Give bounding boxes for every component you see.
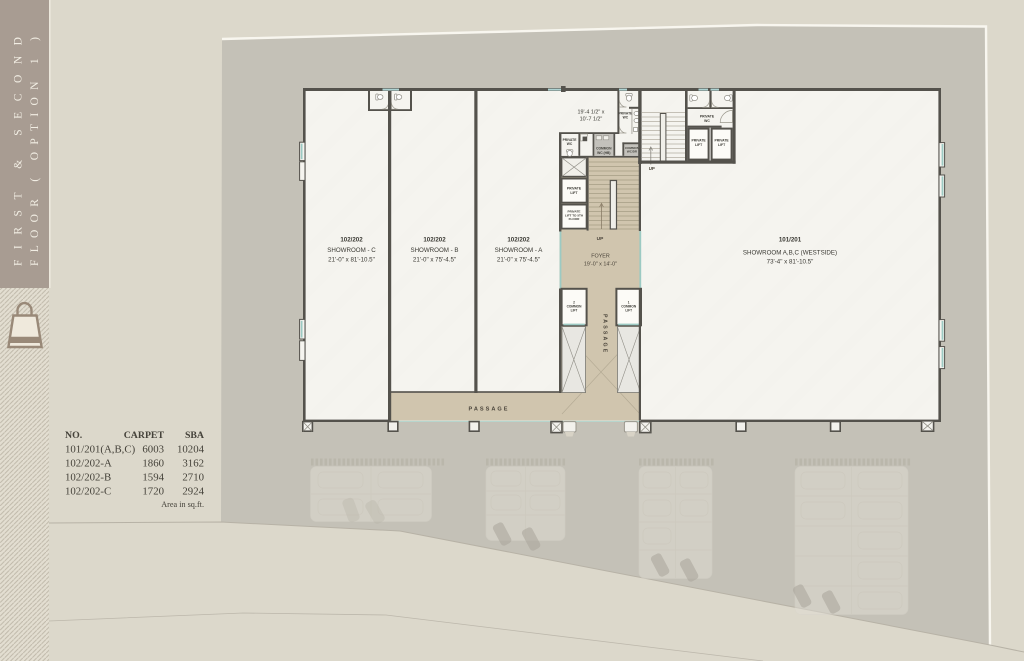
svg-text:102/202: 102/202 <box>423 237 446 244</box>
svg-text:21'-0" x 75'-4.5": 21'-0" x 75'-4.5" <box>413 256 456 263</box>
svg-text:SHOWROOM - A: SHOWROOM - A <box>495 247 544 254</box>
svg-text:10204: 10204 <box>177 444 205 456</box>
svg-text:LIFT: LIFT <box>625 309 632 313</box>
svg-text:3162: 3162 <box>182 458 204 470</box>
svg-text:73'-4" x 81'-10.5": 73'-4" x 81'-10.5" <box>767 259 814 266</box>
svg-text:101/201(A,B,C): 101/201(A,B,C) <box>65 444 136 456</box>
svg-text:PASSAGE: PASSAGE <box>469 406 510 412</box>
svg-text:UP: UP <box>649 166 655 171</box>
svg-text:102/202-B: 102/202-B <box>65 472 111 484</box>
svg-text:19'-0" x 14'-0": 19'-0" x 14'-0" <box>584 262 617 268</box>
svg-text:102/202: 102/202 <box>507 237 530 244</box>
svg-text:NO.: NO. <box>65 430 83 441</box>
svg-text:101/201: 101/201 <box>779 237 802 244</box>
svg-text:21'-0" x 75'-4.5": 21'-0" x 75'-4.5" <box>497 256 540 263</box>
svg-text:WC: WC <box>623 116 629 120</box>
svg-text:WC (HB): WC (HB) <box>597 151 610 155</box>
svg-text:1860: 1860 <box>142 458 164 470</box>
svg-text:WC/DR: WC/DR <box>627 150 638 154</box>
svg-text:1720: 1720 <box>142 486 164 498</box>
svg-text:10'-7 1/2": 10'-7 1/2" <box>580 117 603 123</box>
svg-text:Area in sq.ft.: Area in sq.ft. <box>161 500 204 509</box>
svg-text:2924: 2924 <box>182 486 204 498</box>
svg-text:UP: UP <box>597 236 604 242</box>
svg-text:WC: WC <box>567 142 573 146</box>
svg-text:102/202-C: 102/202-C <box>65 486 111 498</box>
svg-text:SHOWROOM - B: SHOWROOM - B <box>410 247 458 254</box>
svg-text:CARPET: CARPET <box>124 430 165 441</box>
svg-text:2710: 2710 <box>182 472 204 484</box>
svg-text:6003: 6003 <box>142 444 164 456</box>
svg-text:1594: 1594 <box>142 472 164 484</box>
svg-text:SHOWROOM A,B,C (WESTSIDE): SHOWROOM A,B,C (WESTSIDE) <box>743 250 837 257</box>
svg-text:SHOWROOM - C: SHOWROOM - C <box>327 247 376 254</box>
svg-text:LIFT: LIFT <box>570 191 578 195</box>
svg-text:102/202-A: 102/202-A <box>65 458 112 470</box>
svg-text:PASSAGE: PASSAGE <box>602 314 608 354</box>
svg-text:WC: WC <box>704 119 710 123</box>
svg-text:21'-0" x 81'-10.5": 21'-0" x 81'-10.5" <box>328 256 375 263</box>
svg-text:FOYER: FOYER <box>591 254 610 260</box>
svg-text:LIFT: LIFT <box>718 143 726 147</box>
svg-text:LIFT: LIFT <box>571 309 578 313</box>
svg-text:LIFT: LIFT <box>695 143 703 147</box>
svg-text:SBA: SBA <box>185 430 204 441</box>
svg-text:FLOOR: FLOOR <box>569 217 581 221</box>
svg-text:19'-4 1/2" x: 19'-4 1/2" x <box>578 110 605 116</box>
svg-text:102/202: 102/202 <box>340 237 363 244</box>
